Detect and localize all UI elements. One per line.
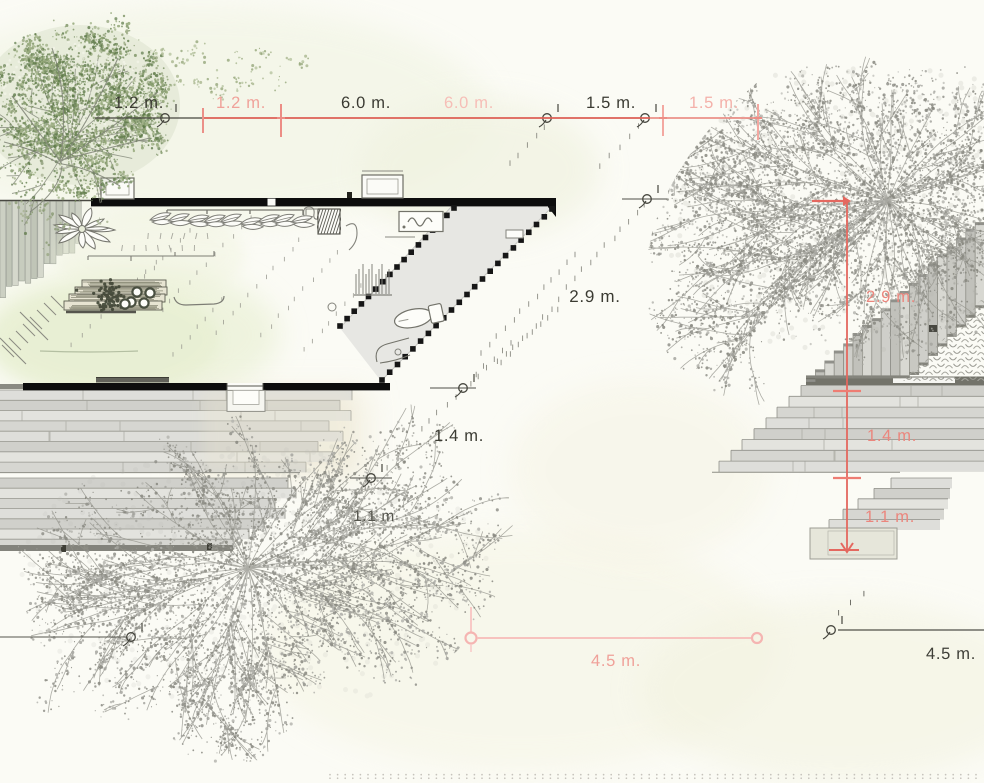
svg-text:2.9 m.: 2.9 m. (569, 287, 620, 306)
svg-text:1.2 m.: 1.2 m. (216, 94, 266, 112)
svg-text:4.5 m.: 4.5 m. (926, 645, 976, 663)
svg-text:2.9 m.: 2.9 m. (866, 288, 916, 306)
svg-text:1.4 m.: 1.4 m. (434, 427, 484, 445)
svg-text:1.5 m.: 1.5 m. (586, 94, 636, 112)
svg-text:1.1 m: 1.1 m (353, 508, 395, 525)
svg-text:1.1 m.: 1.1 m. (865, 508, 915, 526)
svg-text:1.4 m.: 1.4 m. (867, 427, 917, 445)
svg-text:1.5 m.: 1.5 m. (689, 94, 739, 112)
svg-text:4.5 m.: 4.5 m. (591, 652, 641, 670)
svg-text:6.0 m.: 6.0 m. (341, 94, 391, 112)
svg-text:6.0 m.: 6.0 m. (444, 94, 494, 112)
svg-text:1.2 m.: 1.2 m. (114, 94, 164, 112)
